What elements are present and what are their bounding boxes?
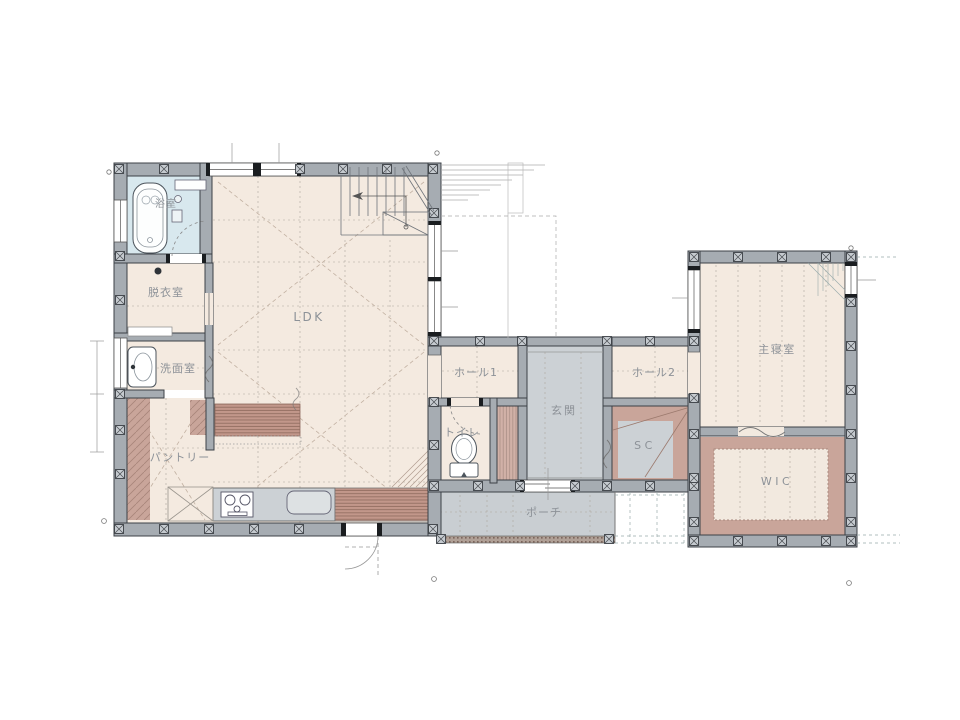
- washbasin: [128, 347, 156, 387]
- entrance-storage: [497, 406, 518, 483]
- room-label-porch: ポーチ: [526, 506, 562, 519]
- floor-plan-page: 浴室 脱衣室 洗面室 LDK パントリー ホール1 トイレ 玄関 ホール2 SC…: [0, 0, 960, 720]
- kitchen-island-counter: [215, 404, 300, 436]
- stove: [221, 492, 253, 517]
- room-label-bath: 浴室: [155, 197, 177, 210]
- pantry-shelf-left: [127, 398, 150, 520]
- room-label-toilet: トイレ: [444, 426, 480, 439]
- room-label-hall2: ホール2: [632, 366, 676, 379]
- room-label-dressing: 脱衣室: [148, 285, 184, 299]
- bath-faucet: [172, 210, 182, 222]
- bath-counter: [175, 180, 206, 190]
- room-label-ldk: LDK: [293, 310, 324, 324]
- bathtub: [133, 183, 167, 253]
- dressing-drain: [155, 268, 162, 275]
- toilet-fixture: [450, 434, 478, 477]
- dressing-counter: [128, 327, 172, 336]
- room-label-wic: WIC: [761, 475, 793, 488]
- ldk-floor: [205, 176, 428, 523]
- wood-deck-strip: [335, 488, 428, 521]
- room-label-washroom: 洗面室: [160, 361, 196, 375]
- room-label-master-bedroom: 主寝室: [758, 342, 796, 356]
- porch-edge-hatch: [437, 536, 615, 543]
- ldk-exterior-door-swing: [345, 536, 378, 569]
- floor-plan-image: 浴室 脱衣室 洗面室 LDK パントリー ホール1 トイレ 玄関 ホール2 SC…: [0, 0, 960, 720]
- room-label-shoe-closet: SC: [634, 439, 656, 452]
- room-label-entrance: 玄関: [551, 403, 577, 417]
- room-label-pantry: パントリー: [150, 451, 211, 464]
- kitchen-sink: [287, 491, 331, 514]
- room-label-hall1: ホール1: [454, 366, 498, 379]
